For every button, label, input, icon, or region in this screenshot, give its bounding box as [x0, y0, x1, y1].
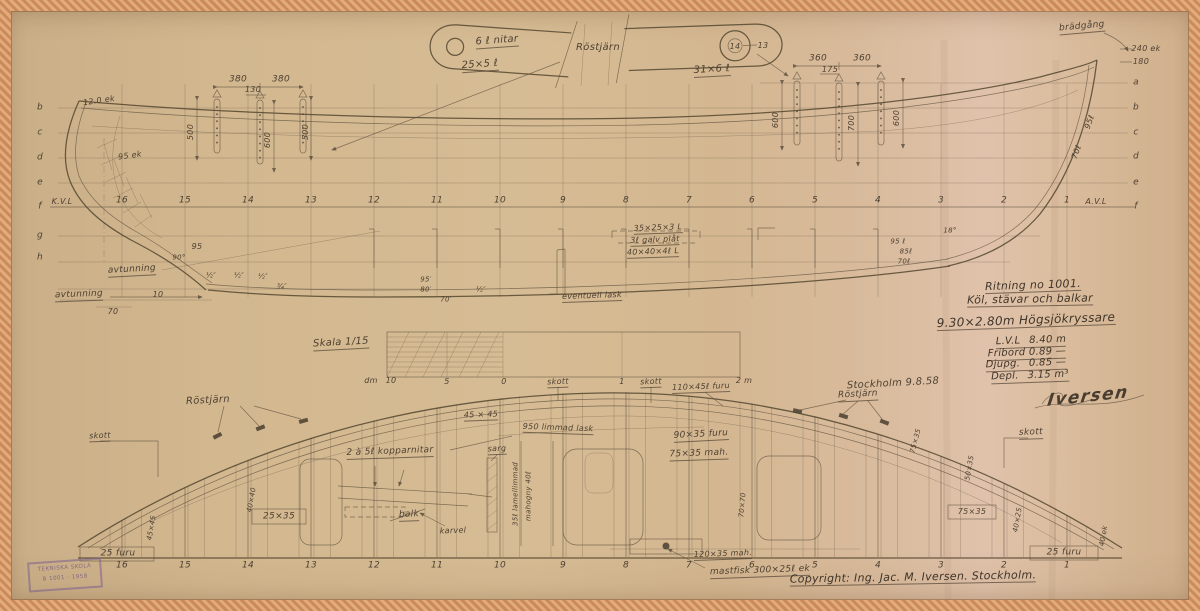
strap-detail-left — [428, 11, 577, 89]
blueprint-sheet: 6 ℓ nitar25×5 ℓRöstjärn31×6 ℓ14133801303… — [0, 0, 1200, 611]
strap-detail-right — [614, 9, 783, 83]
scale-bar — [387, 332, 740, 377]
keel-scarf-detail — [549, 228, 775, 294]
plan-openings — [300, 449, 821, 545]
blueprint-linework — [0, 0, 1200, 611]
profile-station-lines — [122, 84, 1067, 297]
profile-chainplates — [213, 72, 885, 164]
dimension-lines — [197, 49, 1132, 172]
plan-leaders — [100, 387, 1028, 568]
archive-stamp: TEKNISKA SKOLA B 1001 · 1958 — [27, 557, 103, 592]
plan-outline — [78, 393, 1122, 558]
profile-waterline-grid — [50, 83, 1135, 307]
plan-frame-lines — [110, 389, 1087, 557]
paper-creases — [944, 40, 1056, 600]
